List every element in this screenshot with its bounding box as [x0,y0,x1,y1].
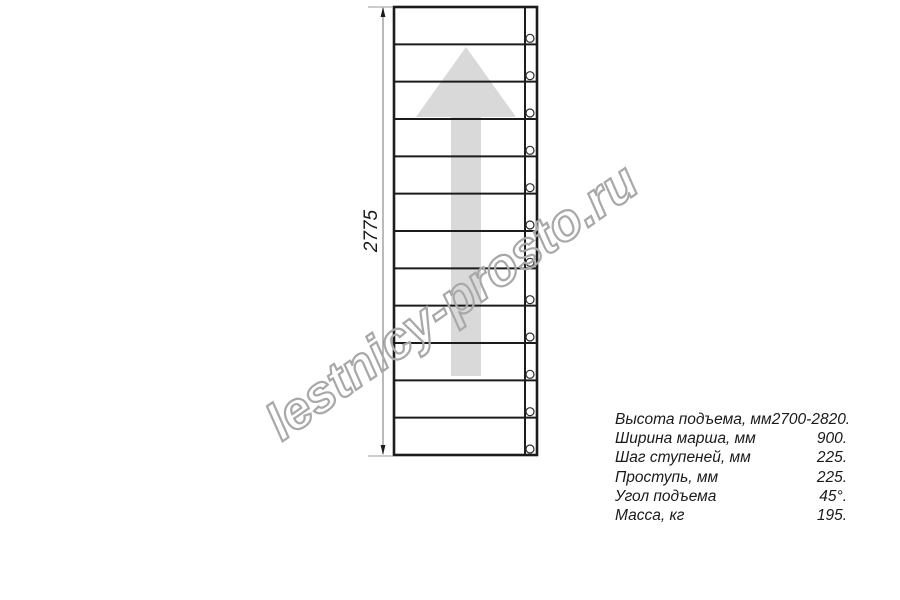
spec-row: Шаг ступеней, мм225. [615,448,847,467]
fastener-hole [526,408,534,416]
fastener-hole [526,333,534,341]
spec-value: 900. [817,429,847,448]
spec-value: 195. [817,506,847,525]
spec-row: Высота подъема, мм2700-2820. [615,410,847,429]
spec-label: Масса, кг [615,506,684,525]
spec-label: Проступь, мм [615,468,718,487]
spec-row: Ширина марша, мм900. [615,429,847,448]
spec-value: 2700-2820. [772,410,850,429]
fastener-hole [526,184,534,192]
spec-row: Проступь, мм225. [615,468,847,487]
spec-row: Масса, кг195. [615,506,847,525]
dimension-label: 2775 [361,209,382,253]
dimension-arrowhead-top [381,7,386,17]
spec-label: Угол подъема [615,487,716,506]
fastener-hole [526,221,534,229]
dimension-arrowhead-bottom [381,445,386,455]
fastener-holes-group [526,34,534,453]
fastener-hole [526,445,534,453]
staircase-drawing-page: 2775 lestnicy-prosto.ru Высота подъема, … [0,0,900,600]
fastener-hole [526,34,534,42]
spec-label: Ширина марша, мм [615,429,756,448]
fastener-hole [526,296,534,304]
spec-row: Угол подъема45°. [615,487,847,506]
spec-value: 225. [817,468,847,487]
spec-value: 45°. [819,487,847,506]
spec-label: Высота подъема, мм [615,410,772,429]
spec-table: Высота подъема, мм2700-2820.Ширина марша… [615,410,847,525]
fastener-hole [526,72,534,80]
direction-arrow-up [416,47,516,376]
fastener-hole [526,109,534,117]
spec-label: Шаг ступеней, мм [615,448,751,467]
fastener-hole [526,258,534,266]
fastener-hole [526,146,534,154]
fastener-hole [526,370,534,378]
spec-value: 225. [817,448,847,467]
